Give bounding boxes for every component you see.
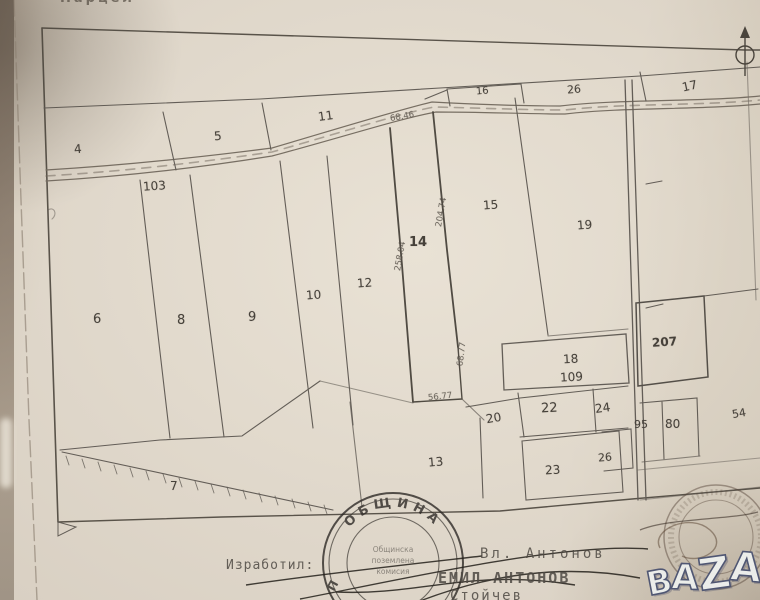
surveyor-name-3: Стойчев bbox=[450, 588, 523, 600]
watermark-letter: Z bbox=[695, 547, 734, 600]
bazar-watermark-logo: B A Z A R bbox=[645, 543, 760, 600]
slope-hatch-marks bbox=[66, 456, 327, 514]
parcel-number-label: 17 bbox=[681, 79, 698, 94]
parcel-number-label: 8 bbox=[177, 314, 185, 327]
stamp-inner-line2: поземлена bbox=[372, 556, 415, 565]
parcel-number-label: 26 bbox=[567, 83, 582, 95]
surveyor-name-2: ЕМИЛ АНТОНОВ bbox=[438, 569, 570, 587]
parcel-number-label: 11 bbox=[317, 109, 334, 123]
parcel-number-label: 14 bbox=[409, 236, 427, 249]
parcel-number-label: 15 bbox=[483, 198, 499, 211]
parcel-number-label: 13 bbox=[428, 455, 444, 468]
prepared-by-label: Изработил: bbox=[226, 558, 314, 573]
parcel-number-label: 9 bbox=[248, 311, 256, 324]
scanned-cadastral-map: Парцел bbox=[0, 0, 760, 600]
surveyor-name-1: Вл. Антонов bbox=[480, 546, 606, 562]
stamp-inner-line1: Общинска bbox=[373, 545, 414, 554]
parcel-number-label: 207 bbox=[652, 335, 678, 349]
parcel-number-label: 103 bbox=[143, 179, 167, 193]
parcel-number-label: 26 bbox=[598, 451, 613, 463]
parcel-number-label: 95 bbox=[634, 419, 648, 430]
parcel-number-label: 7 bbox=[170, 480, 178, 492]
parcel-number-label: 109 bbox=[560, 370, 584, 383]
parcel-number-label: 18 bbox=[563, 353, 579, 366]
measurement-label: 56.77 bbox=[428, 392, 453, 403]
parcel-number-label: 19 bbox=[577, 218, 593, 231]
parcel-number-label: 6 bbox=[93, 313, 101, 326]
watermark-letter: A bbox=[671, 558, 699, 599]
parcel-number-label: 24 bbox=[594, 401, 611, 415]
parcel-number-label: 22 bbox=[541, 402, 558, 416]
parcel-number-label: 12 bbox=[357, 276, 373, 289]
parcel-number-label: 23 bbox=[545, 464, 561, 477]
parcel-number-label: 5 bbox=[213, 130, 222, 143]
parcel-number-label: 80 bbox=[665, 418, 680, 430]
parcel-number-label: 16 bbox=[476, 86, 490, 97]
cadastral-drawing: ОБЩИНА П Общинска поземлена комисия bbox=[0, 0, 760, 600]
parcel-number-label: 54 bbox=[731, 407, 747, 420]
watermark-letter: A bbox=[729, 544, 760, 593]
parcel-number-label: 20 bbox=[485, 411, 502, 425]
parcel-number-label: 4 bbox=[73, 143, 82, 156]
parcel-number-label: 10 bbox=[306, 288, 322, 301]
stamp-inner-line3: комисия bbox=[376, 567, 409, 576]
